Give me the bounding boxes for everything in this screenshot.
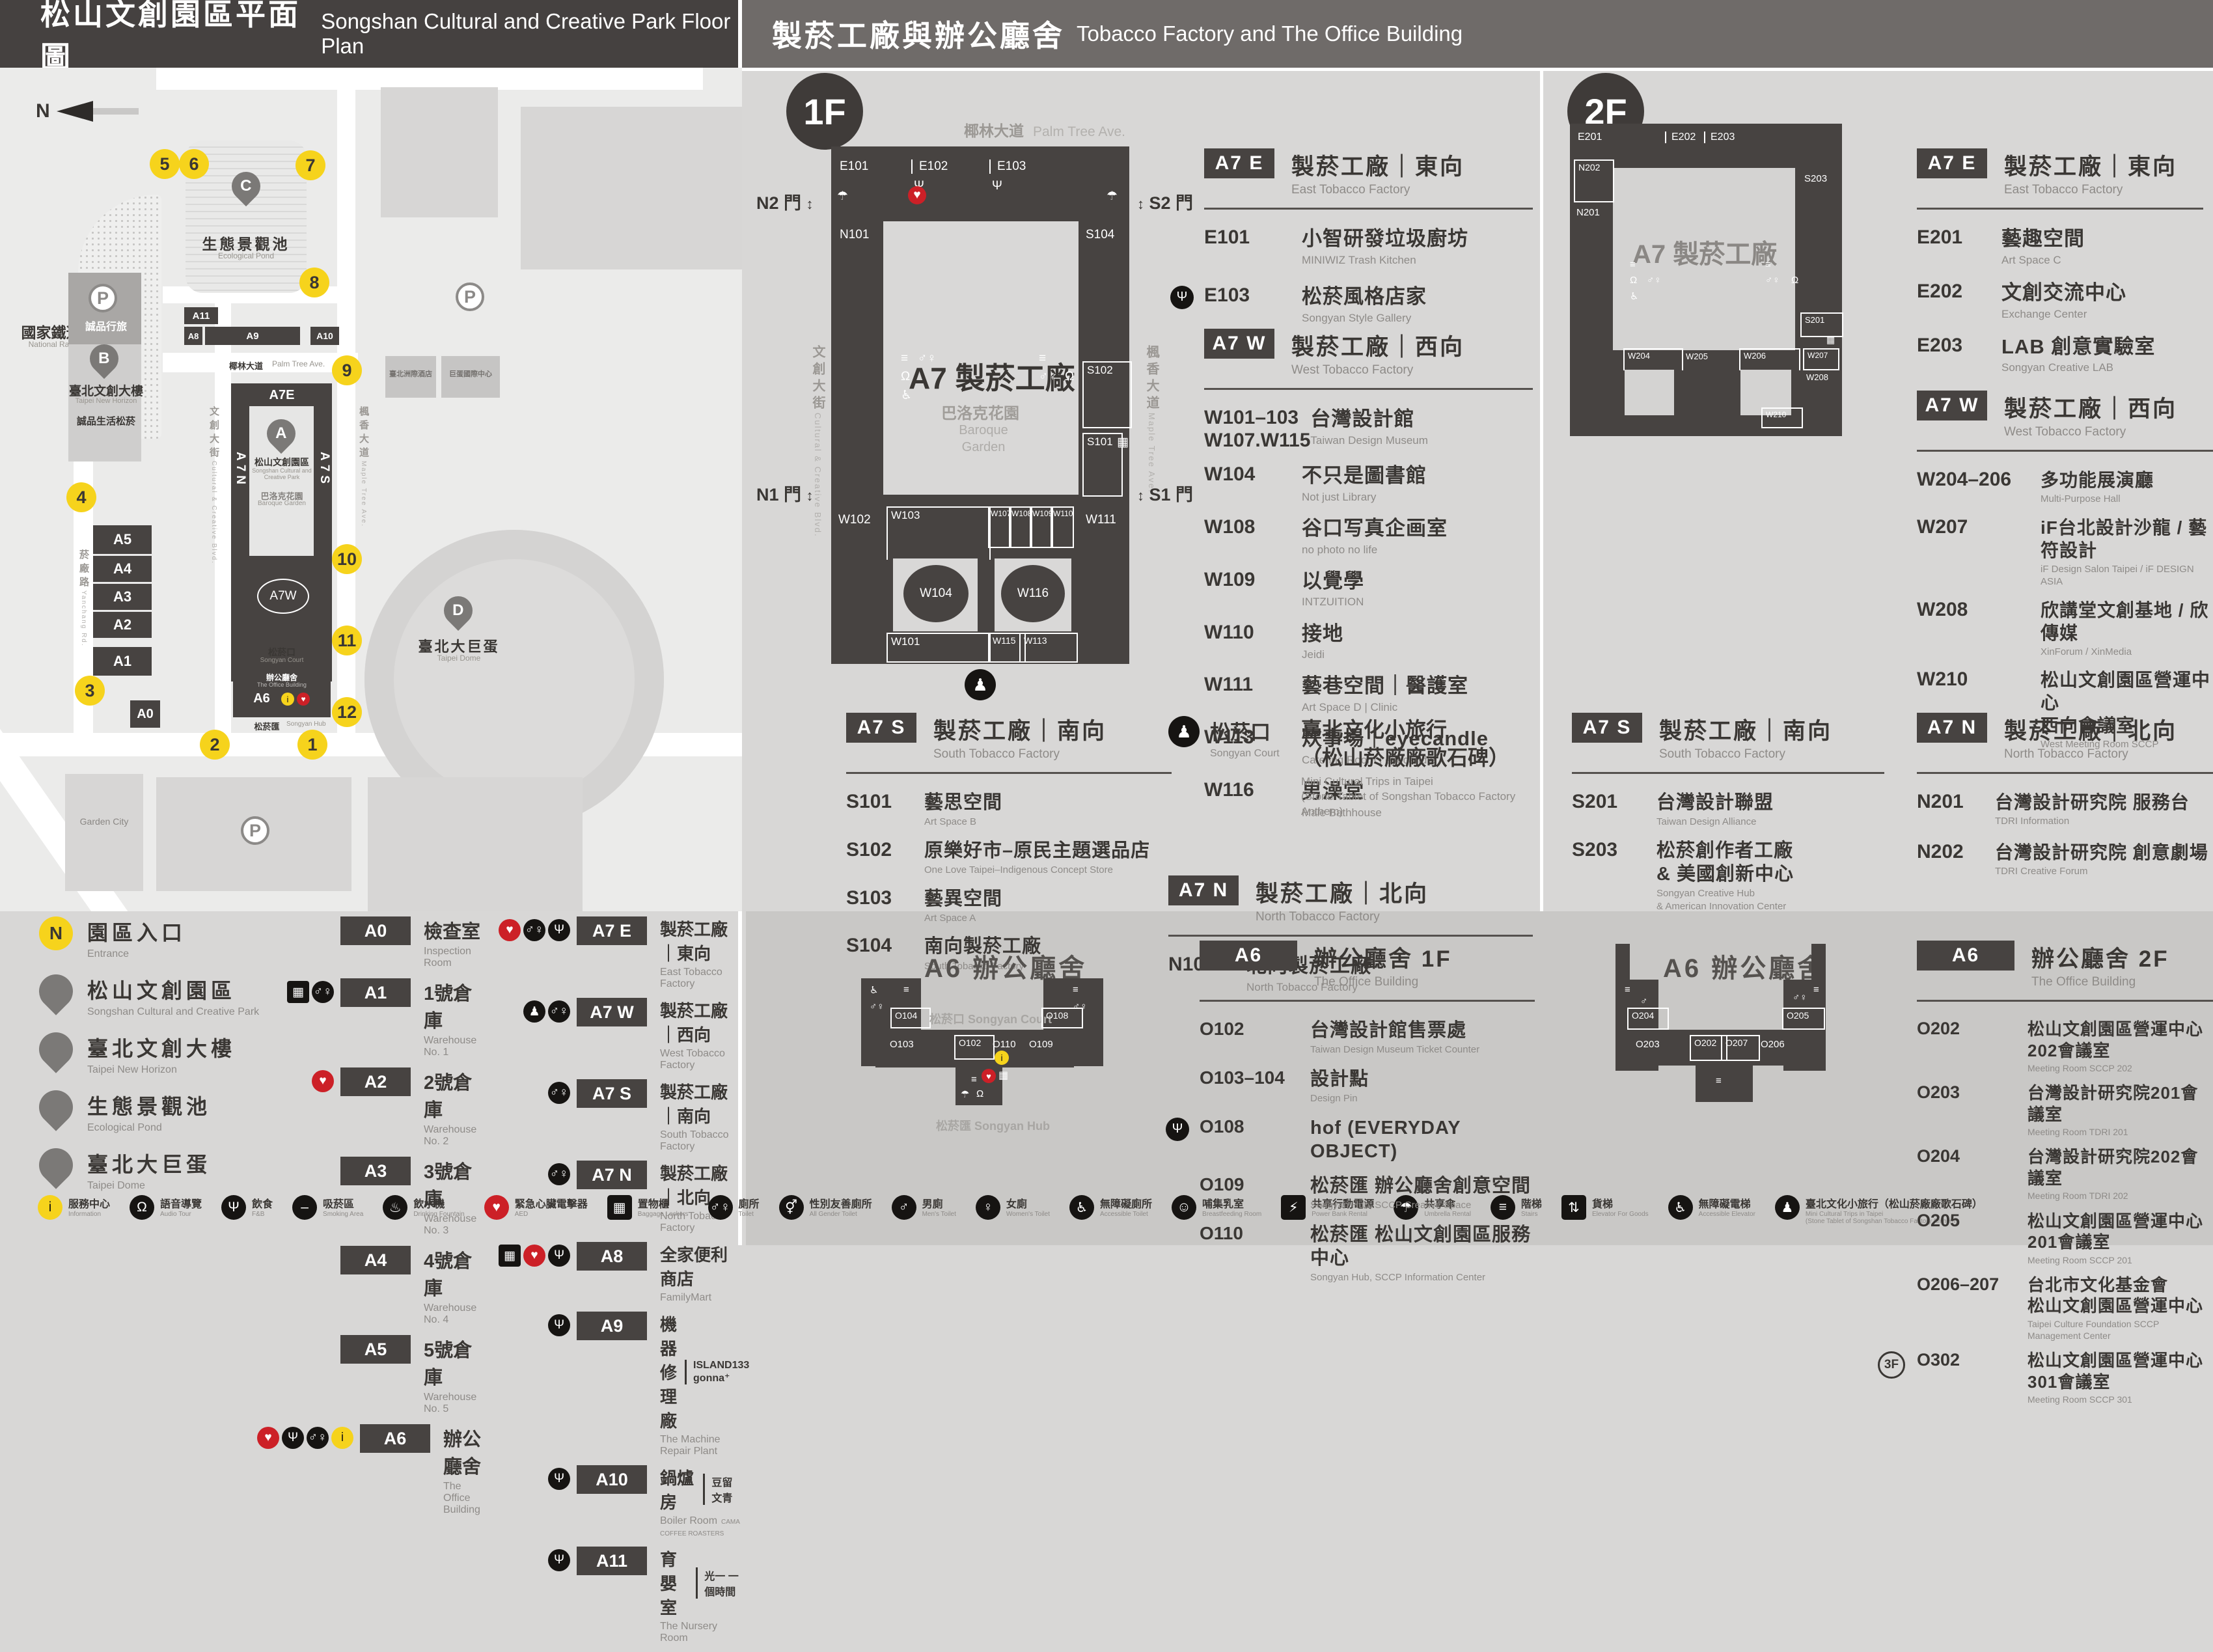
building-code: A0 (340, 916, 411, 945)
room-name: 台北市文化基金會松山文創園區營運中心Taipei Culture Foundat… (2027, 1274, 2213, 1342)
building-code: A2 (340, 1067, 411, 1096)
room-name: 松山文創園區營運中心201會議室Meeting Room SCCP 201 (2027, 1211, 2213, 1266)
entrance-12: 12 (332, 697, 362, 727)
stairs-icon: ≡ (903, 984, 909, 995)
elevator-icon: ♿ (1668, 1195, 1693, 1220)
legend-place-row: N 園區入口Entrance (39, 916, 273, 960)
room-name: 台灣設計館售票處Taiwan Design Museum Ticket Coun… (1310, 1019, 1479, 1056)
building-name-zh: 辦公廳舍 (443, 1424, 485, 1479)
stairs-icon: ≡ (1073, 984, 1079, 995)
stairs-icon: ≡ (1765, 259, 1771, 270)
section-code-badge: A7 N (1168, 875, 1239, 905)
room-row: S203松菸創作者工廠& 美國創新中心Songyan Creative Hub&… (1572, 839, 1884, 913)
aed-icon: ♥ (499, 919, 521, 941)
plan-room: O104 (890, 1008, 931, 1028)
block-a0: A0 (130, 700, 160, 728)
plan-room: W205 (1686, 351, 1708, 361)
room-code: S103 (846, 887, 924, 910)
building-name-zh: 4號倉庫 (424, 1246, 485, 1301)
facility-item: ♂♀ 廁所Toilet (708, 1195, 760, 1220)
building-name-zh: 1號倉庫 (424, 978, 485, 1033)
yanchang-rd-label: 菸廠路Yanchang Rd. (77, 549, 90, 647)
maple-ave-plan-label: 楓香大道Maple Tree Ave. (1142, 345, 1161, 493)
mens-icon: ♂ (1640, 996, 1647, 1007)
section-title-en: East Tobacco Factory (2004, 183, 2177, 197)
legend-building-row: ▦♂♀ A1 1號倉庫Warehouse No. 1 (257, 978, 485, 1058)
building-code: A8 (577, 1242, 647, 1271)
room-name: 藝異空間Art Space A (924, 887, 1002, 925)
facility-label-zh: 置物櫃 (638, 1195, 689, 1211)
building-name-en: South Tobacco Factory (660, 1129, 741, 1153)
a7e-map-label: A7E (249, 388, 314, 403)
building-name-en: East Tobacco Factory (660, 967, 741, 990)
umbrella-icon: ☂ (961, 1088, 969, 1100)
legend-place-row: C 生態景觀池Ecological Pond (39, 1090, 273, 1134)
place-name-zh: 臺北大巨蛋 (87, 1148, 211, 1178)
building-code: A1 (340, 978, 411, 1007)
locker-icon: ▦ (607, 1195, 632, 1220)
plan-room: W208 (1803, 371, 1832, 383)
room-name: 多功能展演廳Multi-Purpose Hall (2041, 469, 2154, 506)
room-code: E101 (1204, 227, 1302, 249)
audio-icon: Ω (1791, 275, 1798, 286)
stairs-icon: ≡ (971, 1074, 977, 1085)
place-name-en: Taipei New Horizon (87, 1064, 236, 1076)
room-row: O202松山文創園區營運中心202會議室Meeting Room SCCP 20… (1917, 1019, 2213, 1074)
room-row: E101小智研發垃圾廚坊MINIWIZ Trash Kitchen (1204, 227, 1533, 268)
section-title-zh: 製菸工廠｜南向 (1659, 713, 1832, 746)
room-name: 接地Jeidi (1302, 622, 1343, 663)
section-code-badge: A7 W (1204, 329, 1274, 359)
plan-room: W207 (1803, 348, 1839, 370)
block-a2: A2 (93, 612, 152, 638)
a7s-map-label: A7S (317, 452, 331, 488)
section-code-badge: A7 E (1917, 148, 1987, 178)
aed-icon: ♥ (484, 1195, 509, 1220)
section-title-zh: 製菸工廠｜東向 (1291, 148, 1464, 182)
entrance-2: 2 (200, 730, 230, 760)
building-name-zh: 全家便利商店 (660, 1242, 741, 1290)
building-code: A6 (360, 1424, 430, 1453)
list-a6-1f: A6 辦公廳舍 1FThe Office Building O102台灣設計館售… (1200, 941, 1535, 1295)
aed-icon: ♥ (257, 1427, 279, 1449)
building-name-en: West Tobacco Factory (660, 1048, 741, 1071)
section-title-zh: 製菸工廠｜北向 (2004, 713, 2177, 746)
room-code: E203 (1917, 335, 2001, 357)
block-a4: A4 (93, 556, 152, 582)
room-row: ΨO108hof (EVERYDAY OBJECT) (1200, 1116, 1535, 1164)
room-code: W204–206 (1917, 469, 2041, 491)
icc-label: 臺北洲際酒店 (387, 368, 435, 379)
building-code: A9 (577, 1312, 647, 1340)
legend-place-row: B 臺北文創大樓Taipei New Horizon (39, 1032, 273, 1076)
palm-ave-label: 椰林大道 (229, 359, 263, 372)
facility-label-zh: 男廁 (922, 1195, 956, 1211)
room-name: 小智研發垃圾廚坊MINIWIZ Trash Kitchen (1302, 227, 1468, 268)
toilet-icon: ♂♀ (548, 1000, 570, 1023)
building-code: A11 (577, 1547, 647, 1575)
building-name-en: The Office Building (443, 1481, 485, 1516)
a7-center-label-2f: A7 製菸工廠 (1632, 233, 1777, 271)
page-title-zh: 松山文創園區平面圖 (40, 0, 309, 77)
room-code: O108 (1200, 1116, 1310, 1137)
plan-room: W210 (1761, 407, 1803, 428)
plan-room: W101 (887, 633, 991, 663)
building-name-zh: 機器修理廠ISLAND133 gonna⁺ (660, 1312, 749, 1432)
room-row: O109松菸匯 辦公廳舍創意空間Songyan Hub, SCCP Creati… (1200, 1174, 1535, 1212)
nursing-icon: ☺ (1172, 1195, 1196, 1220)
office-building-label-en: The Office Building (234, 681, 329, 688)
plan-room: W108 (1009, 506, 1032, 548)
room-name: 松菸匯 辦公廳舍創意空間Songyan Hub, SCCP Creative S… (1310, 1174, 1531, 1212)
building-name-en: Inspection Room (424, 946, 485, 969)
plan-room: E101 (840, 159, 868, 174)
plan-room: S104 (1086, 228, 1114, 242)
toilet-icon: ♂♀ (1765, 275, 1780, 286)
building-name-en: Warehouse No. 2 (424, 1124, 485, 1148)
room-name: 藝趣空間Art Space C (2001, 227, 2085, 268)
baroque-label: 巴洛克花園 (941, 400, 1019, 423)
room-row: W108谷口写真企画室no photo no life (1204, 516, 1533, 557)
audio-icon: Ω (130, 1195, 154, 1220)
tower-b-label: 臺北文創大樓 (57, 381, 155, 399)
dining-icon: Ψ (1166, 1118, 1189, 1141)
gate-s2: ↕ S2 門 (1137, 189, 1193, 214)
aed-icon: ♥ (312, 1070, 334, 1092)
room-name: 以覺學INTZUITION (1302, 569, 1364, 610)
facility-item: ⚥ 性別友善廁所All Gender Toilet (779, 1195, 872, 1220)
facility-item: ⇅ 貨梯Elevator For Goods (1561, 1195, 1649, 1220)
vending-icon: ▦ (1117, 435, 1129, 450)
facility-item: – 吸菸區Smoking Area (292, 1195, 363, 1220)
building-code: A7 E (577, 916, 647, 945)
cc-blvd-label: 文創大街Cultural & Creative Blvd. (207, 406, 221, 564)
section-title-en: Tobacco Factory and The Office Building (1077, 21, 1463, 46)
plan-room: W102 (838, 513, 871, 527)
room-name: 松山文創園區營運中心301會議室Meeting Room SCCP 301 (2027, 1350, 2213, 1405)
place-name-en: Songshan Cultural and Creative Park (87, 1006, 259, 1018)
header-left: 松山文創園區平面圖 Songshan Cultural and Creative… (0, 0, 742, 68)
building-name-en: The Machine Repair Plant (660, 1434, 749, 1457)
room-name: 台灣設計研究院201會議室Meeting Room TDRI 201 (2027, 1082, 2213, 1138)
tower-b-label-en: Taipei New Horizon (57, 397, 155, 405)
block-a3: A3 (93, 584, 152, 610)
plan-room: O102 (954, 1035, 995, 1060)
section-title-zh: 辦公廳舍 2F (2031, 941, 2169, 974)
info-icon: i (281, 693, 294, 706)
songyan-court-label-en: Songyan Court (253, 657, 311, 664)
room-name: 文創交流中心Exchange Center (2001, 281, 2126, 322)
list-a7n-2f: A7 N 製菸工廠｜北向North Tobacco Factory N201台灣… (1917, 713, 2213, 890)
aed-icon: ♥ (523, 1245, 545, 1267)
room-code: O206–207 (1917, 1274, 2027, 1295)
building-name-en: FamilyMart (660, 1292, 741, 1304)
room-row: S103藝異空間Art Space A (846, 887, 1172, 925)
room-code: W108 (1204, 516, 1302, 539)
room-row: E203LAB 創意實驗室Songyan Creative LAB (1917, 335, 2203, 376)
room-name: 松菸匯 松山文創園區服務中心Songyan Hub, SCCP Informat… (1310, 1223, 1535, 1284)
room-row: N201台灣設計研究院 服務台TDRI Information (1917, 791, 2213, 828)
section-title-en: The Office Building (2031, 975, 2169, 989)
facility-label-zh: 無障礙廁所 (1100, 1195, 1152, 1211)
room-row: W111藝巷空間｜醫護室Art Space D | Clinic (1204, 674, 1533, 715)
legend-building-row: A0 檢查室Inspection Room (257, 916, 485, 969)
locker-icon: ▦ (287, 981, 309, 1003)
mens-icon: ♂ (892, 1195, 916, 1220)
plan-room: N101 (840, 228, 869, 242)
room-code: W109 (1204, 569, 1302, 592)
section-code-badge: A6 (1200, 941, 1297, 971)
plan-room: W107 (988, 506, 1011, 548)
room-code: O102 (1200, 1019, 1310, 1039)
stairs-icon: ≡ (1716, 1075, 1722, 1086)
room-code: W111 (1204, 674, 1302, 696)
facility-label-en: Elevator For Goods (1592, 1211, 1649, 1218)
plan-room: O203 (1632, 1038, 1663, 1051)
building-name-en: Warehouse No. 4 (424, 1302, 485, 1326)
room-name: 設計點Design Pin (1310, 1067, 1369, 1105)
block-a8: A8 (184, 327, 202, 345)
facility-label-zh: 無障礙電梯 (1699, 1195, 1755, 1211)
womens-icon: ♀ (976, 1195, 1000, 1220)
place-name-zh: 園區入口 (87, 916, 186, 946)
plan-room: O205 (1782, 1008, 1825, 1030)
facility-label-en: AED (515, 1211, 588, 1218)
facility-item: Ψ 飲食F&B (221, 1195, 273, 1220)
room-code: E202 (1917, 281, 2001, 303)
section-title-zh: 製菸工廠｜北向 (1256, 875, 1429, 909)
section-title-zh: 製菸工廠與辦公廳舍 (772, 12, 1065, 55)
plan-room: W113 (1019, 633, 1078, 663)
plan-room: E102 (911, 159, 948, 174)
list-a7w-2f: A7 W 製菸工廠｜西向West Tobacco Factory W204–20… (1917, 391, 2213, 762)
court-description: 臺北文化小旅行 （松山菸廠廠歌石碑） Mini Cultural Trips i… (1301, 716, 1539, 819)
list-a7e-1f: A7 E 製菸工廠｜東向East Tobacco Factory E101小智研… (1204, 148, 1533, 342)
facility-label-zh: 廁所 (739, 1195, 760, 1211)
block-a1: A1 (93, 647, 152, 676)
section-title-zh: 製菸工廠｜西向 (1291, 329, 1464, 362)
plan-room: N202 (1574, 159, 1614, 202)
place-name-en: Entrance (87, 948, 186, 960)
room-row: W208欣講堂文創基地 / 欣傳媒XinForum / XinMedia (1917, 599, 2213, 659)
plan-room: S203 (1804, 173, 1827, 184)
facility-label-en: Accessible Toilet (1100, 1211, 1152, 1218)
legend-factory-row: ♥♂♀Ψ A7 E 製菸工廠｜東向East Tobacco Factory (493, 916, 741, 990)
room-code: W110 (1204, 622, 1302, 644)
room-code: N201 (1917, 791, 1995, 814)
smoking-icon: – (292, 1195, 317, 1220)
room-row: O206–207台北市文化基金會松山文創園區營運中心Taipei Culture… (1917, 1274, 2213, 1342)
room-code: W208 (1917, 599, 2041, 622)
stairs-icon: ≡ (1039, 351, 1046, 366)
court-name: 松菸口Songyan Court (1210, 716, 1301, 819)
facility-label-en: Women's Toilet (1006, 1211, 1050, 1218)
building-name-zh: 5號倉庫 (424, 1335, 485, 1390)
songyan-hub-label: 松菸匯 (247, 720, 286, 732)
entrance-6: 6 (179, 149, 209, 179)
room-row: O110松菸匯 松山文創園區服務中心Songyan Hub, SCCP Info… (1200, 1223, 1535, 1284)
building-name-zh: 製菸工廠｜東向 (660, 916, 741, 965)
room-name: 藝思空間Art Space B (924, 791, 1002, 829)
park-a-label: 松山文創園區 (246, 456, 318, 469)
legend-building-row: ♥ A2 2號倉庫Warehouse No. 2 (257, 1067, 485, 1148)
facility-item: ♿ 無障礙廁所Accessible Toilet (1069, 1195, 1152, 1220)
room-row: O204台灣設計研究院202會議室Meeting Room TDRI 202 (1917, 1146, 2213, 1202)
w204-hall (1625, 370, 1674, 415)
plan-room: O103 (887, 1038, 917, 1051)
room-name: 欣講堂文創基地 / 欣傳媒XinForum / XinMedia (2041, 599, 2213, 659)
plan-room: W204 (1623, 348, 1683, 370)
toilet-icon: ♂♀ (870, 1001, 885, 1012)
toilet-icon: ♂♀ (1039, 370, 1058, 384)
umbrella-icon: ☂ (837, 189, 848, 204)
place-badge: B (32, 1025, 80, 1073)
dining-icon: Ψ (548, 1549, 570, 1571)
toilet-icon: ♂♀ (1073, 1001, 1088, 1012)
room-row: O205松山文創園區營運中心201會議室Meeting Room SCCP 20… (1917, 1211, 2213, 1266)
a6-map-label: A6 (242, 691, 281, 706)
road (156, 68, 703, 90)
dining-icon: Ψ (221, 1195, 246, 1220)
header-right: 製菸工廠與辦公廳舍 Tobacco Factory and The Office… (742, 0, 2213, 68)
facility-label-zh: 女廁 (1006, 1195, 1050, 1211)
parking-icon: P (456, 282, 484, 311)
dome-intl-label: 巨蛋國際中心 (444, 368, 497, 379)
toilet-icon: ♂♀ (1793, 992, 1808, 1003)
room-name: 台灣設計研究院 服務台TDRI Information (1995, 791, 2190, 828)
building-name-zh: 製菸工廠｜西向 (660, 998, 741, 1046)
room-name: 松菸創作者工廠& 美國創新中心Songyan Creative Hub& Ame… (1656, 839, 1794, 913)
legend-places: N 園區入口Entrance A 松山文創園區Songshan Cultural… (39, 916, 273, 1206)
plan-room: E202 (1665, 131, 1696, 143)
section-title-zh: 製菸工廠｜西向 (2004, 391, 2177, 424)
section-title-en: West Tobacco Factory (1291, 363, 1464, 378)
section-title-en: West Tobacco Factory (2004, 425, 2177, 439)
building-code: A3 (340, 1157, 411, 1185)
building-name-en: Warehouse No. 5 (424, 1392, 485, 1415)
room-code: E201 (1917, 227, 2001, 249)
info-icon: i (331, 1427, 353, 1449)
building-name-en: The Nursery Room (660, 1621, 741, 1644)
room-name: 松菸風格店家Songyan Style Gallery (1302, 284, 1427, 325)
palm-ave-plan-label: 椰林大道Palm Tree Ave. (898, 118, 1191, 141)
section-title-en: North Tobacco Factory (1256, 910, 1429, 924)
facility-item: i 服務中心Information (38, 1195, 110, 1220)
stairs-icon: ≡ (901, 351, 908, 366)
accessible-icon: ♿ (1630, 290, 1638, 302)
building-code: A10 (577, 1465, 647, 1494)
songyan-hub-label-en: Songyan Hub (286, 721, 338, 728)
section-code-badge: A7 E (1204, 148, 1274, 178)
room-row: S102原樂好市–原民主題選品店One Love Taipei–Indigeno… (846, 839, 1172, 877)
legend-factory-row: Ψ A11 育嬰室光一 一個時間The Nursery Room (493, 1547, 741, 1644)
room-row: ΨE103松菸風格店家Songyan Style Gallery (1204, 284, 1533, 325)
plan-room: S102 (1082, 361, 1132, 428)
parking-icon: P (89, 284, 117, 312)
info-icon: i (995, 1051, 1009, 1065)
hub-ghost-label: 松菸匯 Songyan Hub (936, 1117, 1050, 1134)
room-row: W204–206多功能展演廳Multi-Purpose Hall (1917, 469, 2213, 506)
room-code: O203 (1917, 1082, 2027, 1103)
dome-label-en: Taipei Dome (404, 654, 514, 663)
section-title-en: South Tobacco Factory (1659, 747, 1832, 762)
palm-ave-label-en: Palm Tree Ave. (272, 359, 325, 368)
section-code-badge: A7 W (1917, 391, 1987, 420)
section-title-zh: 辦公廳舍 1F (1314, 941, 1452, 974)
a6-stem (1696, 1066, 1753, 1102)
building-name-en: Warehouse No. 1 (424, 1035, 485, 1058)
room-code: O110 (1200, 1223, 1310, 1244)
section-title-en: The Office Building (1314, 975, 1452, 989)
room-name: 台灣設計研究院 創意劇場TDRI Creative Forum (1995, 841, 2208, 878)
facility-label-en: Drinking Fountain (413, 1211, 464, 1218)
plan-room: W104 (903, 565, 969, 622)
room-name: 不只是圖書館Not just Library (1302, 463, 1427, 504)
place-badge: D (32, 1141, 80, 1189)
plan-room: N201 (1576, 207, 1600, 218)
room-name: hof (EVERYDAY OBJECT) (1310, 1116, 1535, 1164)
dining-icon: Ψ (548, 1314, 570, 1336)
room-code: E103 (1204, 284, 1302, 307)
place-name-en: Taipei Dome (87, 1180, 211, 1192)
legend-factory-row: Ψ A10 鍋爐房豆留文青Boiler RoomCAMA COFFEE ROAS… (493, 1465, 741, 1539)
building-code: A4 (340, 1246, 411, 1274)
gate-n1: N1 門 ↕ (756, 480, 814, 506)
dining-icon: Ψ (1170, 286, 1194, 309)
entrance-7: 7 (296, 150, 325, 180)
legend-factory-row: ♟♂♀ A7 W 製菸工廠｜西向West Tobacco Factory (493, 998, 741, 1071)
songyan-court-info: ♟ 松菸口Songyan Court 臺北文化小旅行 （松山菸廠廠歌石碑） Mi… (1168, 716, 1539, 819)
place-name-en: Ecological Pond (87, 1122, 211, 1134)
room-row: O203台灣設計研究院201會議室Meeting Room TDRI 201 (1917, 1082, 2213, 1138)
legend-building-row: A5 5號倉庫Warehouse No. 5 (257, 1335, 485, 1415)
building-name-zh: 2號倉庫 (424, 1067, 485, 1122)
culture-icon: ♟ (1775, 1195, 1800, 1220)
room-row: E201藝趣空間Art Space C (1917, 227, 2203, 268)
north-arrow: N (36, 100, 139, 122)
entrance-3: 3 (75, 676, 105, 706)
section-title-zh: 製菸工廠｜南向 (933, 713, 1106, 746)
plan-room: O110 (989, 1038, 1019, 1051)
floor-3f-badge: 3F (1878, 1351, 1905, 1379)
room-name: 台灣設計聯盟Taiwan Design Alliance (1656, 791, 1774, 829)
cc-blvd-plan-label: 文創大街Cultural & Creative Blvd. (808, 345, 827, 538)
room-code: S101 (846, 791, 924, 814)
list-a6-2f: A6 辦公廳舍 2FThe Office Building O202松山文創園區… (1917, 941, 2213, 1414)
room-row: S101藝思空間Art Space B (846, 791, 1172, 829)
entrance-4: 4 (66, 482, 96, 512)
legend-building-row: ♥Ψ♂♀i A6 辦公廳舍The Office Building (257, 1424, 485, 1516)
facility-label-zh: 貨梯 (1592, 1195, 1649, 1211)
place-name-zh: 生態景觀池 (87, 1090, 211, 1120)
dining-icon: Ψ (548, 919, 570, 941)
dining-icon: Ψ (548, 1245, 570, 1267)
room-code: O204 (1917, 1146, 2027, 1166)
room-code: O109 (1200, 1174, 1310, 1195)
room-row: S201台灣設計聯盟Taiwan Design Alliance (1572, 791, 1884, 829)
plan-room: W109 (1030, 506, 1053, 548)
toilet-icon: ♂♀ (548, 1163, 570, 1185)
dome-annex-block (368, 777, 583, 911)
facility-label-en: Toilet (739, 1211, 760, 1218)
pond-label-en: Ecological Pond (194, 251, 298, 260)
plan-room: O109 (1026, 1038, 1056, 1051)
dining-icon: Ψ (548, 1468, 570, 1490)
eslite-hotel-label: 誠品行旅 (70, 318, 142, 333)
facility-item: ♂ 男廁Men's Toilet (892, 1195, 956, 1220)
facility-label-en: Information (68, 1211, 110, 1218)
place-name-zh: 松山文創園區 (87, 974, 259, 1004)
